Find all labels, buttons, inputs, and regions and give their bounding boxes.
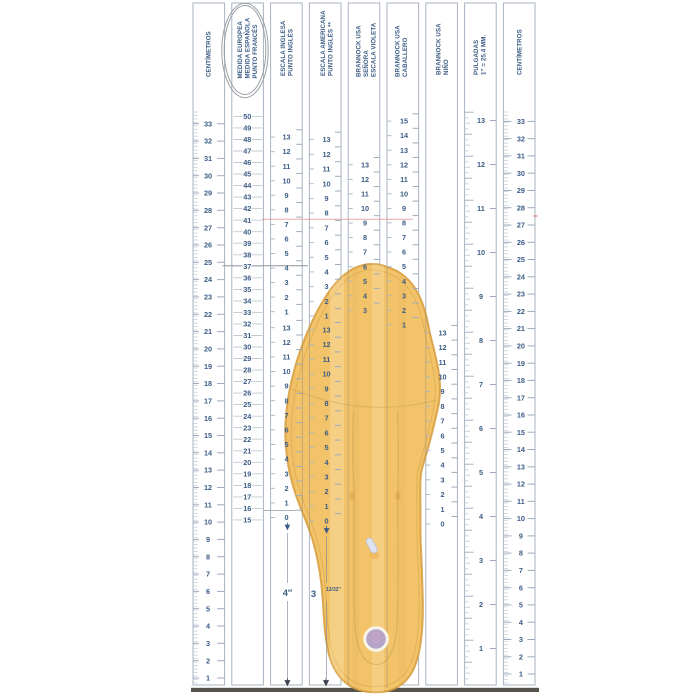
svg-text:20: 20 — [243, 458, 251, 467]
svg-text:MEDIDA EUROPEA: MEDIDA EUROPEA — [237, 21, 244, 79]
svg-text:31: 31 — [517, 152, 525, 161]
svg-text:6: 6 — [324, 428, 328, 437]
svg-text:8: 8 — [402, 219, 406, 228]
svg-text:27: 27 — [517, 221, 525, 230]
svg-text:32: 32 — [243, 320, 251, 329]
svg-text:PUNTO FRANCÉS: PUNTO FRANCÉS — [251, 24, 259, 78]
svg-text:15: 15 — [204, 431, 212, 440]
svg-text:7: 7 — [284, 411, 288, 420]
svg-text:12: 12 — [322, 150, 330, 159]
svg-text:28: 28 — [243, 366, 251, 375]
svg-text:44: 44 — [243, 181, 252, 190]
svg-text:5: 5 — [284, 249, 288, 258]
svg-text:11: 11 — [361, 190, 369, 199]
svg-text:27: 27 — [204, 223, 212, 232]
svg-text:26: 26 — [517, 238, 525, 247]
svg-text:3: 3 — [324, 473, 328, 482]
svg-text:35: 35 — [243, 285, 251, 294]
svg-text:37: 37 — [243, 262, 251, 271]
svg-text:9: 9 — [324, 194, 328, 203]
svg-text:2: 2 — [519, 652, 523, 661]
svg-text:30: 30 — [243, 343, 251, 352]
svg-text:5: 5 — [363, 277, 367, 286]
svg-text:8: 8 — [324, 209, 328, 218]
svg-text:12: 12 — [361, 175, 369, 184]
svg-text:6: 6 — [206, 587, 210, 596]
svg-text:10: 10 — [282, 176, 290, 185]
svg-text:13: 13 — [204, 466, 212, 475]
svg-text:31: 31 — [204, 154, 212, 163]
svg-text:15: 15 — [243, 516, 251, 525]
svg-text:16: 16 — [243, 504, 251, 513]
svg-text:PULGADAS: PULGADAS — [473, 40, 480, 75]
svg-text:43: 43 — [243, 193, 251, 202]
svg-text:13: 13 — [361, 160, 369, 169]
svg-text:BRANNOCK USA: BRANNOCK USA — [395, 25, 402, 77]
svg-text:11: 11 — [439, 358, 447, 367]
svg-text:6: 6 — [479, 424, 483, 433]
svg-text:9: 9 — [519, 532, 523, 541]
svg-text:23: 23 — [243, 423, 251, 432]
svg-text:22: 22 — [243, 435, 251, 444]
svg-text:5: 5 — [402, 262, 406, 271]
svg-text:8: 8 — [324, 399, 328, 408]
svg-text:10: 10 — [204, 518, 212, 527]
svg-text:38: 38 — [243, 250, 251, 259]
svg-text:24: 24 — [204, 275, 213, 284]
svg-text:11: 11 — [204, 500, 212, 509]
svg-text:1: 1 — [324, 502, 328, 511]
svg-text:25: 25 — [243, 400, 251, 409]
svg-text:50: 50 — [243, 112, 251, 121]
svg-text:3: 3 — [311, 589, 316, 600]
svg-text:12: 12 — [204, 483, 212, 492]
svg-text:6: 6 — [284, 426, 288, 435]
svg-text:7: 7 — [324, 414, 328, 423]
svg-text:8: 8 — [519, 549, 523, 558]
svg-text:ESCALA VIOLETA: ESCALA VIOLETA — [371, 22, 378, 77]
svg-text:25: 25 — [517, 255, 525, 264]
svg-text:8: 8 — [479, 336, 483, 345]
svg-text:29: 29 — [204, 189, 212, 198]
svg-text:SEÑORA: SEÑORA — [363, 50, 370, 77]
svg-text:23: 23 — [517, 290, 525, 299]
svg-text:26: 26 — [243, 389, 251, 398]
svg-text:8: 8 — [440, 402, 444, 411]
svg-text:47: 47 — [243, 147, 251, 156]
svg-text:PUNTO INGLÉS: PUNTO INGLÉS — [287, 29, 295, 76]
svg-text:5: 5 — [519, 601, 523, 610]
svg-text:BRANNOCK USA: BRANNOCK USA — [436, 23, 443, 75]
svg-text:1: 1 — [284, 307, 288, 316]
svg-text:3: 3 — [284, 278, 288, 287]
svg-text:32: 32 — [517, 134, 525, 143]
svg-text:9: 9 — [363, 219, 367, 228]
svg-text:2: 2 — [284, 484, 288, 493]
svg-text:BRANNOCK USA: BRANNOCK USA — [356, 25, 363, 77]
svg-text:7: 7 — [284, 220, 288, 229]
svg-text:11: 11 — [283, 162, 291, 171]
svg-text:33: 33 — [517, 117, 525, 126]
svg-text:13: 13 — [517, 462, 525, 471]
svg-text:8: 8 — [206, 552, 210, 561]
svg-text:7: 7 — [363, 248, 367, 257]
svg-text:5: 5 — [284, 440, 288, 449]
svg-text:17: 17 — [204, 397, 212, 406]
svg-text:12: 12 — [400, 160, 408, 169]
svg-text:1: 1 — [206, 674, 210, 683]
svg-text:9: 9 — [402, 204, 406, 213]
svg-text:3: 3 — [206, 639, 210, 648]
svg-text:10: 10 — [282, 367, 290, 376]
svg-text:15: 15 — [517, 428, 525, 437]
svg-text:32: 32 — [204, 137, 212, 146]
svg-text:7: 7 — [402, 233, 406, 242]
svg-text:6: 6 — [402, 248, 406, 257]
svg-text:19: 19 — [517, 359, 525, 368]
svg-text:6: 6 — [324, 238, 328, 247]
svg-text:2: 2 — [479, 600, 483, 609]
svg-text:18: 18 — [517, 376, 525, 385]
svg-text:12: 12 — [322, 340, 330, 349]
svg-text:3: 3 — [519, 635, 523, 644]
svg-text:49: 49 — [243, 124, 251, 133]
svg-text:ESCALA AMERICANA: ESCALA AMERICANA — [320, 10, 327, 76]
svg-text:8: 8 — [284, 396, 288, 405]
svg-text:13: 13 — [477, 116, 485, 125]
svg-text:11: 11 — [400, 175, 408, 184]
svg-text:CENTÍMETROS: CENTÍMETROS — [516, 29, 524, 75]
svg-text:26: 26 — [204, 241, 212, 250]
svg-text:30: 30 — [204, 171, 212, 180]
svg-text:11: 11 — [477, 204, 485, 213]
svg-text:3: 3 — [402, 291, 406, 300]
svg-text:4″: 4″ — [283, 588, 293, 598]
svg-text:30: 30 — [517, 169, 525, 178]
svg-text:12: 12 — [282, 338, 290, 347]
svg-text:13: 13 — [282, 323, 290, 332]
svg-text:14: 14 — [204, 448, 213, 457]
svg-text:29: 29 — [517, 186, 525, 195]
svg-text:40: 40 — [243, 227, 251, 236]
svg-text:14: 14 — [517, 445, 526, 454]
svg-text:5: 5 — [324, 443, 328, 452]
svg-text:33: 33 — [204, 119, 212, 128]
svg-text:5: 5 — [324, 253, 328, 262]
svg-text:1″ = 25.4 MM.: 1″ = 25.4 MM. — [481, 35, 488, 75]
svg-text:2: 2 — [284, 293, 288, 302]
svg-text:5: 5 — [206, 604, 210, 613]
svg-text:9: 9 — [440, 387, 444, 396]
svg-text:13: 13 — [400, 146, 408, 155]
svg-text:8: 8 — [284, 205, 288, 214]
svg-text:7: 7 — [519, 566, 523, 575]
svg-text:9: 9 — [284, 382, 288, 391]
svg-text:0: 0 — [440, 520, 444, 529]
svg-text:6: 6 — [363, 262, 367, 271]
svg-text:CABALLERO: CABALLERO — [402, 37, 409, 77]
svg-text:46: 46 — [243, 158, 251, 167]
svg-text:28: 28 — [204, 206, 212, 215]
svg-text:1: 1 — [324, 312, 328, 321]
svg-text:20: 20 — [517, 342, 525, 351]
svg-text:2: 2 — [440, 490, 444, 499]
svg-text:9: 9 — [206, 535, 210, 544]
svg-text:10: 10 — [361, 204, 369, 213]
svg-text:18: 18 — [243, 481, 251, 490]
svg-text:17: 17 — [517, 393, 525, 402]
svg-text:12: 12 — [282, 147, 290, 156]
svg-text:21: 21 — [243, 446, 251, 455]
svg-text:13: 13 — [438, 328, 446, 337]
svg-text:13/32″: 13/32″ — [326, 587, 342, 593]
svg-text:36: 36 — [243, 273, 251, 282]
svg-text:2: 2 — [206, 656, 210, 665]
svg-text:6: 6 — [440, 431, 444, 440]
svg-text:41: 41 — [243, 216, 251, 225]
svg-text:39: 39 — [243, 239, 251, 248]
svg-text:6: 6 — [519, 583, 523, 592]
svg-text:9: 9 — [324, 384, 328, 393]
svg-text:9: 9 — [284, 191, 288, 200]
svg-text:11: 11 — [323, 355, 331, 364]
svg-text:24: 24 — [517, 272, 526, 281]
svg-text:45: 45 — [243, 170, 251, 179]
svg-text:48: 48 — [243, 135, 251, 144]
svg-text:10: 10 — [477, 248, 485, 257]
svg-text:16: 16 — [204, 414, 212, 423]
svg-text:34: 34 — [243, 297, 252, 306]
svg-text:2: 2 — [324, 297, 328, 306]
svg-text:0: 0 — [284, 513, 288, 522]
svg-text:7: 7 — [324, 223, 328, 232]
svg-text:7: 7 — [479, 380, 483, 389]
svg-text:1: 1 — [284, 499, 288, 508]
svg-text:24: 24 — [243, 412, 252, 421]
svg-text:12: 12 — [438, 343, 446, 352]
svg-text:3: 3 — [440, 475, 444, 484]
svg-text:13: 13 — [322, 326, 330, 335]
svg-text:10: 10 — [517, 514, 525, 523]
svg-text:18: 18 — [204, 379, 212, 388]
svg-text:10: 10 — [400, 189, 408, 198]
svg-text:7: 7 — [206, 570, 210, 579]
svg-text:10: 10 — [438, 373, 446, 382]
svg-text:11: 11 — [283, 353, 291, 362]
svg-text:ESCALA INGLESA: ESCALA INGLESA — [280, 20, 287, 76]
svg-text:7: 7 — [440, 417, 444, 426]
svg-text:25: 25 — [204, 258, 212, 267]
svg-text:5: 5 — [479, 468, 483, 477]
svg-text:3: 3 — [324, 282, 328, 291]
svg-text:14: 14 — [400, 131, 409, 140]
svg-text:PUNTO INGLÉS **: PUNTO INGLÉS ** — [327, 22, 335, 76]
svg-text:1: 1 — [479, 644, 483, 653]
svg-text:11: 11 — [323, 165, 331, 174]
svg-text:19: 19 — [204, 362, 212, 371]
svg-text:6: 6 — [284, 235, 288, 244]
svg-text:5: 5 — [440, 446, 444, 455]
svg-text:19: 19 — [243, 469, 251, 478]
svg-text:13: 13 — [282, 133, 290, 142]
svg-text:22: 22 — [204, 310, 212, 319]
svg-text:13: 13 — [322, 135, 330, 144]
svg-text:28: 28 — [517, 203, 525, 212]
svg-text:CENTÍMETROS: CENTÍMETROS — [205, 31, 213, 77]
svg-text:21: 21 — [517, 324, 525, 333]
svg-text:12: 12 — [517, 480, 525, 489]
svg-text:22: 22 — [517, 307, 525, 316]
svg-text:NIÑO: NIÑO — [443, 59, 450, 75]
svg-text:2: 2 — [402, 306, 406, 315]
svg-text:42: 42 — [243, 204, 251, 213]
svg-text:1: 1 — [402, 320, 406, 329]
svg-text:3: 3 — [479, 556, 483, 565]
svg-text:29: 29 — [243, 354, 251, 363]
svg-text:16: 16 — [517, 411, 525, 420]
svg-text:20: 20 — [204, 345, 212, 354]
svg-text:0: 0 — [324, 517, 328, 526]
svg-text:3: 3 — [284, 469, 288, 478]
svg-text:15: 15 — [400, 117, 408, 126]
svg-text:11: 11 — [517, 497, 525, 506]
svg-text:10: 10 — [322, 179, 330, 188]
svg-text:8: 8 — [363, 233, 367, 242]
svg-text:27: 27 — [243, 377, 251, 386]
svg-text:12: 12 — [477, 160, 485, 169]
svg-text:17: 17 — [243, 493, 251, 502]
svg-text:3: 3 — [363, 306, 367, 315]
svg-text:23: 23 — [204, 293, 212, 302]
svg-text:2: 2 — [324, 487, 328, 496]
svg-text:31: 31 — [243, 331, 251, 340]
svg-text:21: 21 — [204, 327, 212, 336]
svg-text:1: 1 — [440, 505, 444, 514]
svg-text:10: 10 — [322, 370, 330, 379]
svg-text:1: 1 — [519, 670, 523, 679]
svg-text:MEDIDA ESPAÑOLA: MEDIDA ESPAÑOLA — [245, 17, 252, 78]
svg-text:33: 33 — [243, 308, 251, 317]
svg-text:9: 9 — [479, 292, 483, 301]
